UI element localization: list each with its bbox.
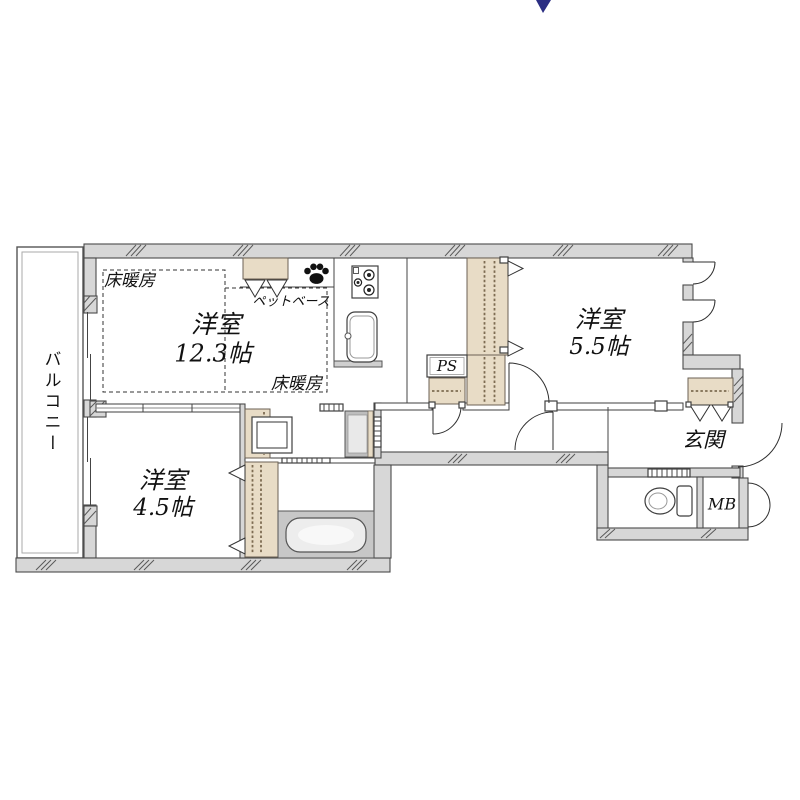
closet-door-marker (508, 261, 523, 276)
north-wall (84, 244, 692, 258)
corridor-closet-door (433, 406, 461, 434)
pipe-space-label: PS (437, 357, 457, 375)
ldk-washroom-door (320, 404, 343, 411)
sliding-doors (282, 404, 690, 477)
meter-box-doors (748, 483, 770, 527)
toilet-sliding-door (648, 469, 690, 477)
room-label-bed2-size: 5.5帖 (569, 327, 629, 361)
toilet (645, 486, 692, 516)
corridor-south-wall (375, 452, 608, 465)
casement-window (693, 262, 715, 284)
room-label-bed3-size: 4.5帖 (133, 488, 193, 522)
corridor-door (515, 412, 553, 450)
pet-base-label: ペットベース (252, 291, 329, 310)
tall-closet (467, 258, 508, 355)
south-wall (16, 558, 390, 572)
meter-box-label: MB (708, 495, 736, 514)
bath-sliding-door (282, 458, 330, 463)
bathroom (278, 511, 374, 558)
floorplan-canvas: バルコニー 床暖房 床暖房 洋室 12.3帖 洋室 5.5帖 洋室 4.5帖 ペ… (0, 0, 800, 800)
entrance-label: 玄関 (682, 424, 724, 454)
casement-window (693, 300, 715, 322)
entrance-door-arc (738, 423, 782, 467)
kitchen (345, 266, 378, 362)
room-label-ldk-size: 12.3帖 (174, 334, 251, 369)
kitchen-sink (347, 312, 377, 362)
floorplan-svg (0, 0, 800, 800)
closet-door-marker (508, 341, 523, 356)
floor-heating-label-a: 床暖房 (104, 266, 155, 291)
balcony-label: バルコニー (39, 350, 64, 455)
washroom (252, 411, 373, 457)
bedroom2-door (509, 363, 549, 403)
closet-door-marker (229, 465, 245, 481)
floor-heating-label-b: 床暖房 (271, 369, 322, 394)
closet-door-marker (229, 538, 245, 554)
map-marker-tip (536, 0, 551, 13)
paw-print-icon (304, 264, 329, 284)
